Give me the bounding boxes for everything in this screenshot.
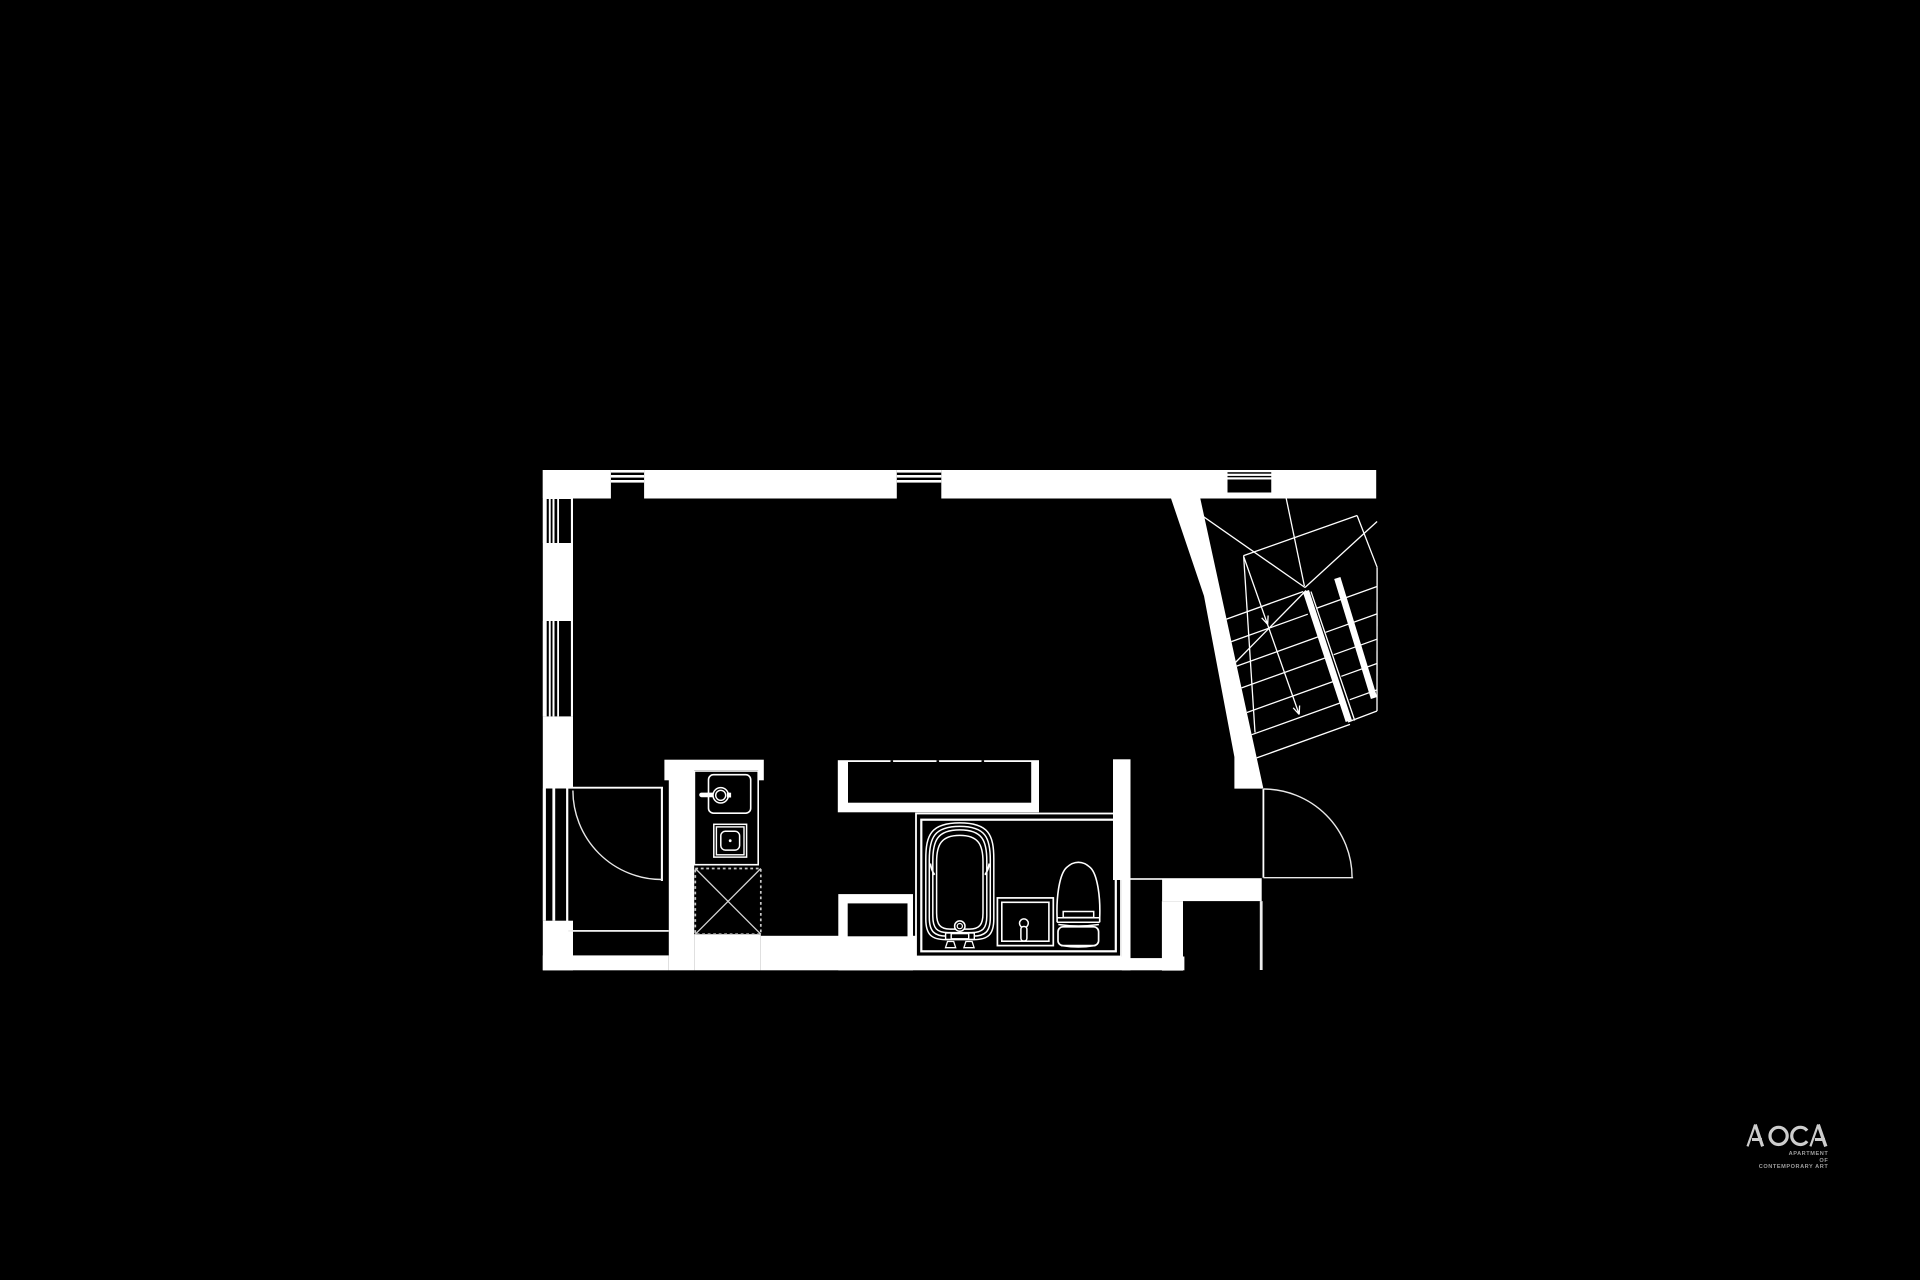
svg-text:APARTMENT: APARTMENT [1789,1151,1829,1157]
svg-text:CONTEMPORARY ART: CONTEMPORARY ART [1759,1164,1829,1170]
